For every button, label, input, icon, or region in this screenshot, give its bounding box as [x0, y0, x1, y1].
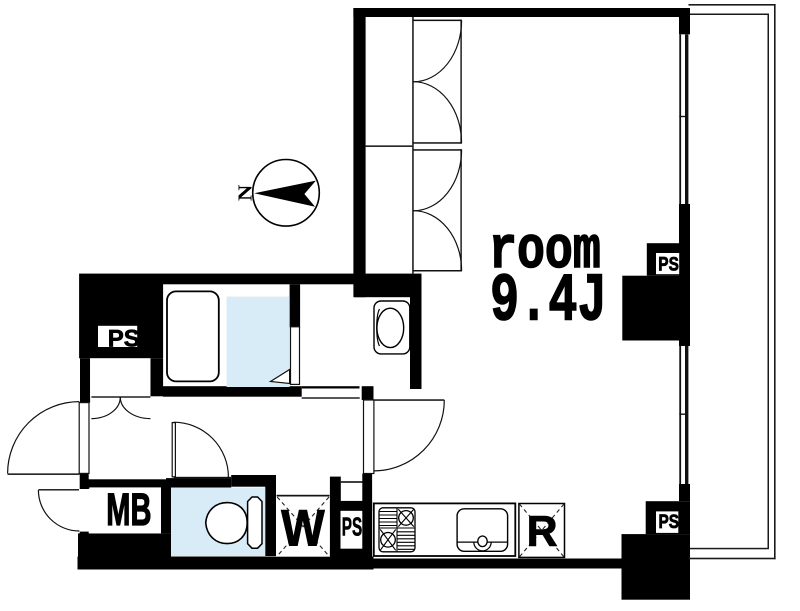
svg-text:PS: PS: [658, 253, 679, 275]
svg-text:PS: PS: [342, 514, 362, 542]
svg-text:9.4J: 9.4J: [490, 263, 607, 340]
svg-text:N: N: [233, 184, 256, 201]
svg-text:PS: PS: [659, 510, 680, 532]
svg-text:PS: PS: [108, 326, 140, 353]
svg-text:W: W: [281, 500, 325, 557]
svg-text:MB: MB: [106, 486, 151, 536]
svg-text:R: R: [527, 509, 558, 556]
